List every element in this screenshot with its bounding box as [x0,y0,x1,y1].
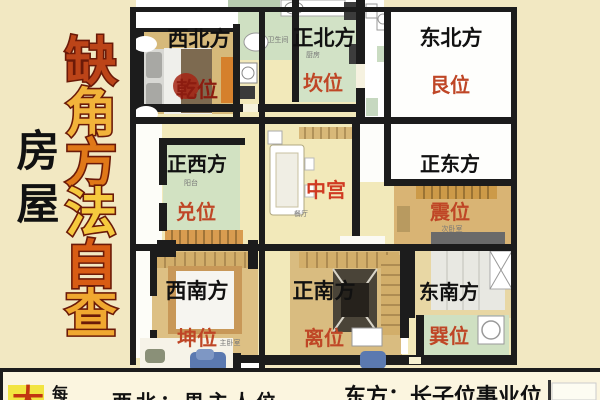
svg-text:东北方: 东北方 [420,26,483,50]
svg-text:房: 房 [17,128,60,176]
svg-text:乾位: 乾位 [176,78,218,102]
svg-text:西北方: 西北方 [168,27,231,51]
svg-text:卫生间: 卫生间 [268,35,289,44]
svg-text:每: 每 [52,384,68,400]
svg-text:正南方: 正南方 [293,279,356,303]
svg-text:大: 大 [12,383,44,400]
svg-text:查: 查 [65,286,117,344]
svg-text:主卧室: 主卧室 [220,338,241,347]
svg-text:坎位: 坎位 [303,71,343,95]
svg-text:正北方: 正北方 [293,26,356,50]
svg-text:屋: 屋 [17,181,60,229]
svg-text:西北：男主人位: 西北：男主人位 [112,390,280,400]
svg-text:巽位: 巽位 [429,324,469,348]
svg-text:东南方: 东南方 [419,280,479,304]
svg-text:坤位: 坤位 [177,326,217,350]
svg-text:离位: 离位 [304,326,344,350]
svg-text:正东方: 正东方 [420,152,480,176]
svg-text:正西方: 正西方 [167,152,227,176]
svg-text:次卧室: 次卧室 [442,224,463,233]
svg-text:中宫: 中宫 [306,178,346,202]
svg-text:餐厅: 餐厅 [294,209,308,218]
svg-text:法: 法 [65,185,117,243]
svg-text:缺: 缺 [65,34,117,92]
svg-text:厨房: 厨房 [306,50,320,59]
svg-text:东方：长子位事业位: 东方：长子位事业位 [344,384,542,400]
svg-text:兑位: 兑位 [176,200,216,224]
svg-text:震位: 震位 [430,200,470,224]
svg-text:阳台: 阳台 [184,178,198,187]
svg-text:艮位: 艮位 [430,73,470,97]
svg-text:西南方: 西南方 [166,279,229,303]
